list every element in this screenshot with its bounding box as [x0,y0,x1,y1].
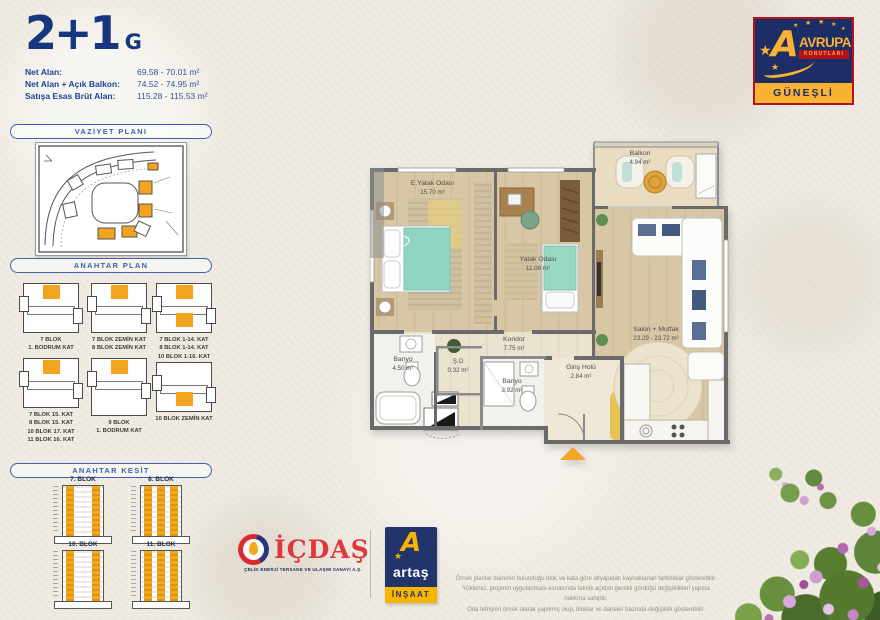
tower-drawing [140,485,182,537]
room-area: 7.75 m² [478,345,550,353]
spec-value: 115.28 - 115.53 m² [137,90,208,102]
highlighted-unit [176,285,193,299]
room-area: 11.08 m² [498,265,578,273]
flower-sprig-decoration [752,448,847,523]
highlighted-unit [111,285,128,299]
room-area: 4.94 m² [598,159,682,167]
brochure-page: 2+1 G Net Alan: 69.58 - 70.01 m² Net Ala… [0,0,880,620]
key-plan-diagram [91,358,147,416]
room-label-bathroom-2: Banyo 3.92 m² [482,378,542,395]
room-name: Banyo [482,378,542,387]
key-plan-diagram [91,283,147,333]
highlighted-unit [111,360,128,374]
hall-runner [474,182,492,324]
star-icon: ★ [818,19,824,26]
star-icon: ★ [831,22,836,28]
room-label-bedroom: Yatak Odası 11.08 m² [498,256,578,273]
room-area: 3.92 m² [482,387,542,395]
room-name: Yatak Odası [498,256,578,265]
room-name: Ş.O [434,359,482,367]
room-label-entry-hall: Giriş Holü 2.84 m² [542,364,620,381]
room-label-balkon: Balkon 4.94 m² [598,150,682,167]
entrance-arrow-icon [560,447,586,460]
key-plan-diagram [23,358,79,408]
room-name: Banyo [374,356,432,365]
tower-drawing [62,550,104,602]
icdas-emblem-icon [238,534,269,565]
room-name: Giriş Holü [542,364,620,373]
highlighted-unit [176,392,193,406]
room-label-bathroom-1: Banyo 4.50 m² [374,356,432,373]
brand-emblem: ★ ★ ★ ★ ★ ★ ★ A AVRUPA KONUTLARI [755,19,852,83]
key-plan-caption: 7 BLOK 15. KAT 8 BLOK 15. KAT 10 BLOK 17… [18,411,84,445]
spec-label: Net Alan: [25,66,137,78]
room-label-master-bedroom: E.Yatak Odası 15.70 m² [385,180,480,197]
room-area: 2.84 m² [542,373,620,381]
artas-letter-a: A [385,530,437,556]
key-plan-diagram [156,362,212,412]
artas-subtitle: İNŞAAT [385,587,437,603]
tower-section-8: 8. BLOK [126,476,196,544]
highlighted-unit [176,313,193,327]
spec-value: 69.58 - 70.01 m² [137,66,199,78]
star-icon: ★ [759,43,772,57]
site-plan-drawing [36,143,186,255]
section-title-anahtar-plan: ANAHTAR PLAN [10,258,212,273]
brand-subname: KONUTLARI [799,50,849,59]
highlighted-unit [43,285,60,299]
disclaimer-text: Örnek planlar dairenin bulunduğu blok ve… [452,574,720,615]
spec-label: Satışa Esas Brüt Alan: [25,90,137,102]
footer-divider [370,530,371,598]
spec-label: Net Alan + Açık Balkon: [25,78,137,90]
site-plan-thumbnail [35,142,187,256]
tower-section-10: 10. BLOK [48,541,118,609]
icdas-name: İÇDAŞ [274,535,370,564]
room-name: Koridor [478,336,550,345]
tower-drawing [140,550,182,602]
icdas-logo: İÇDAŞ ÇELİK ENERJİ TERSANE VE ULAŞIM SAN… [238,534,368,572]
highlighted-unit [43,360,60,374]
tower-label: 11. BLOK [126,541,196,548]
section-title-vaziyet-plani: VAZİYET PLANI [10,124,212,139]
key-plan-caption: 7 BLOK ZEMİN KAT 8 BLOK ZEMİN KAT [86,336,152,353]
tower-section-11: 11. BLOK [126,541,196,609]
spec-row: Net Alan + Açık Balkon: 74.52 - 74.95 m² [25,78,265,90]
room-area: 0.32 m² [434,367,482,375]
tower-label: 7. BLOK [48,476,118,483]
key-plan-caption: 7 BLOK 1. BODRUM KAT [18,336,84,353]
key-plan-1: 7 BLOK 1. BODRUM KAT [18,283,84,353]
tower-label: 8. BLOK [126,476,196,483]
room-area: 23.29 - 23.72 m² [604,335,708,343]
unit-variant: G [125,30,142,54]
key-plan-diagram [156,283,212,333]
tower-drawing [62,485,104,537]
room-name: Salon + Mutfak [604,326,708,335]
key-plan-4: 7 BLOK 15. KAT 8 BLOK 15. KAT 10 BLOK 17… [18,358,84,445]
project-location-label: GÜNEŞLİ [755,83,852,103]
room-label-corridor: Koridor 7.75 m² [478,336,550,353]
spec-value: 74.52 - 74.95 m² [137,78,199,90]
tower-section-7: 7. BLOK [48,476,118,544]
key-plan-5: 9 BLOK 1. BODRUM KAT [86,358,152,436]
key-plan-diagram [23,283,79,333]
star-icon: ★ [841,27,845,32]
key-plan-2: 7 BLOK ZEMİN KAT 8 BLOK ZEMİN KAT [86,283,152,353]
star-icon: ★ [394,551,402,562]
room-area: 4.50 m² [374,365,432,373]
plant-icon [596,214,608,226]
tower-label: 10. BLOK [48,541,118,548]
avrupa-konutlari-logo: ★ ★ ★ ★ ★ ★ ★ A AVRUPA KONUTLARI GÜNEŞLİ [753,17,854,105]
room-name: Balkon [598,150,682,159]
key-plan-caption: 10 BLOK ZEMİN KAT [151,415,217,423]
room-area: 15.70 m² [385,189,480,197]
star-icon: ★ [805,20,811,27]
room-name: E.Yatak Odası [385,180,480,189]
brand-name: AVRUPA [799,35,851,50]
key-plan-6: 10 BLOK ZEMİN KAT [151,362,217,423]
icdas-tagline: ÇELİK ENERJİ TERSANE VE ULAŞIM SANAYİ A.… [238,567,368,572]
key-plan-caption: 9 BLOK 1. BODRUM KAT [86,419,152,436]
key-plan-3: 7 BLOK 1-14. KAT 8 BLOK 1-14. KAT 10 BLO… [151,283,217,370]
artas-name: artaş [385,564,437,580]
area-specs: Net Alan: 69.58 - 70.01 m² Net Alan + Aç… [25,66,265,102]
artas-logo: A ★ artaş İNŞAAT [385,527,437,603]
master-bedroom-furniture [376,198,462,316]
spec-row: Satışa Esas Brüt Alan: 115.28 - 115.53 m… [25,90,265,102]
floor-plan: Balkon 4.94 m² E.Yatak Odası 15.70 m² Ya… [370,140,730,462]
unit-type: 2+1 [25,10,119,56]
spec-row: Net Alan: 69.58 - 70.01 m² [25,66,265,78]
room-label-shaft: Ş.O 0.32 m² [434,359,482,375]
page-title: 2+1 G [25,10,142,56]
room-label-living-room: Salon + Mutfak 23.29 - 23.72 m² [604,326,708,343]
